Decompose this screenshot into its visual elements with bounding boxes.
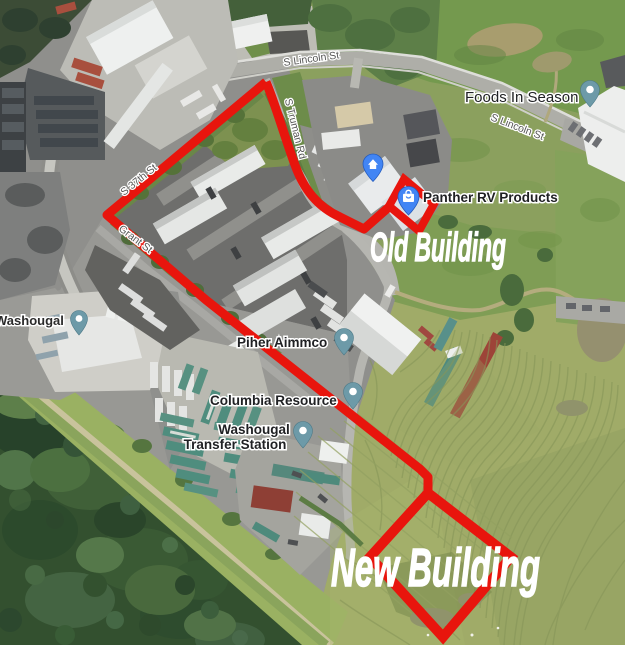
svg-text:New Building: New Building — [331, 538, 540, 598]
svg-text:Transfer Station: Transfer Station — [184, 437, 287, 452]
svg-text:Panther RV Products: Panther RV Products — [423, 190, 558, 205]
svg-text:Washougal: Washougal — [218, 422, 290, 437]
svg-text:Piher Aimmco: Piher Aimmco — [237, 335, 327, 350]
svg-text:Washougal: Washougal — [0, 313, 64, 328]
svg-text:Columbia Resource: Columbia Resource — [210, 393, 337, 408]
svg-text:Foods In Season: Foods In Season — [465, 89, 578, 106]
svg-text:Old Building: Old Building — [370, 224, 506, 270]
